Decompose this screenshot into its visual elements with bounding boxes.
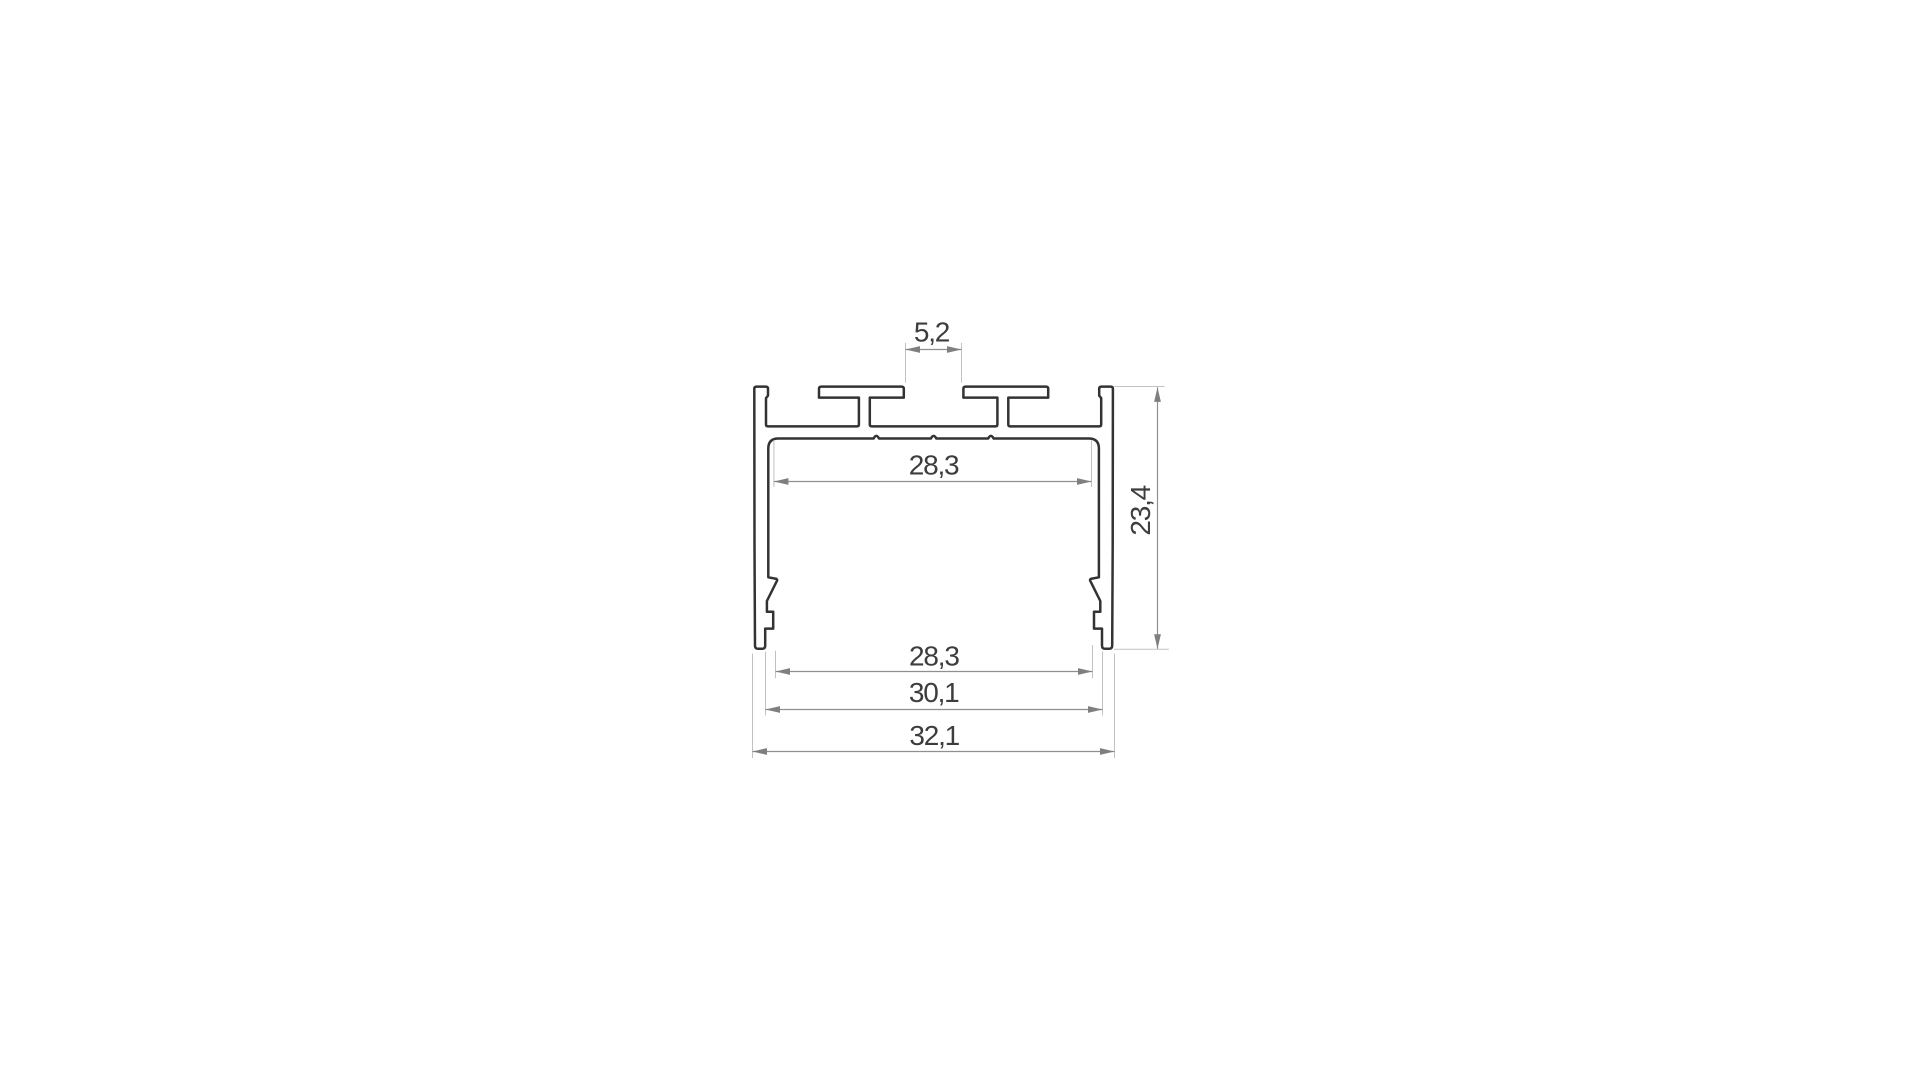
svg-text:28,3: 28,3 <box>909 640 959 671</box>
svg-text:5,2: 5,2 <box>914 317 950 348</box>
svg-text:23,4: 23,4 <box>1125 485 1156 535</box>
svg-text:32,1: 32,1 <box>909 720 959 751</box>
svg-text:28,3: 28,3 <box>909 450 959 481</box>
svg-text:30,1: 30,1 <box>909 677 959 708</box>
